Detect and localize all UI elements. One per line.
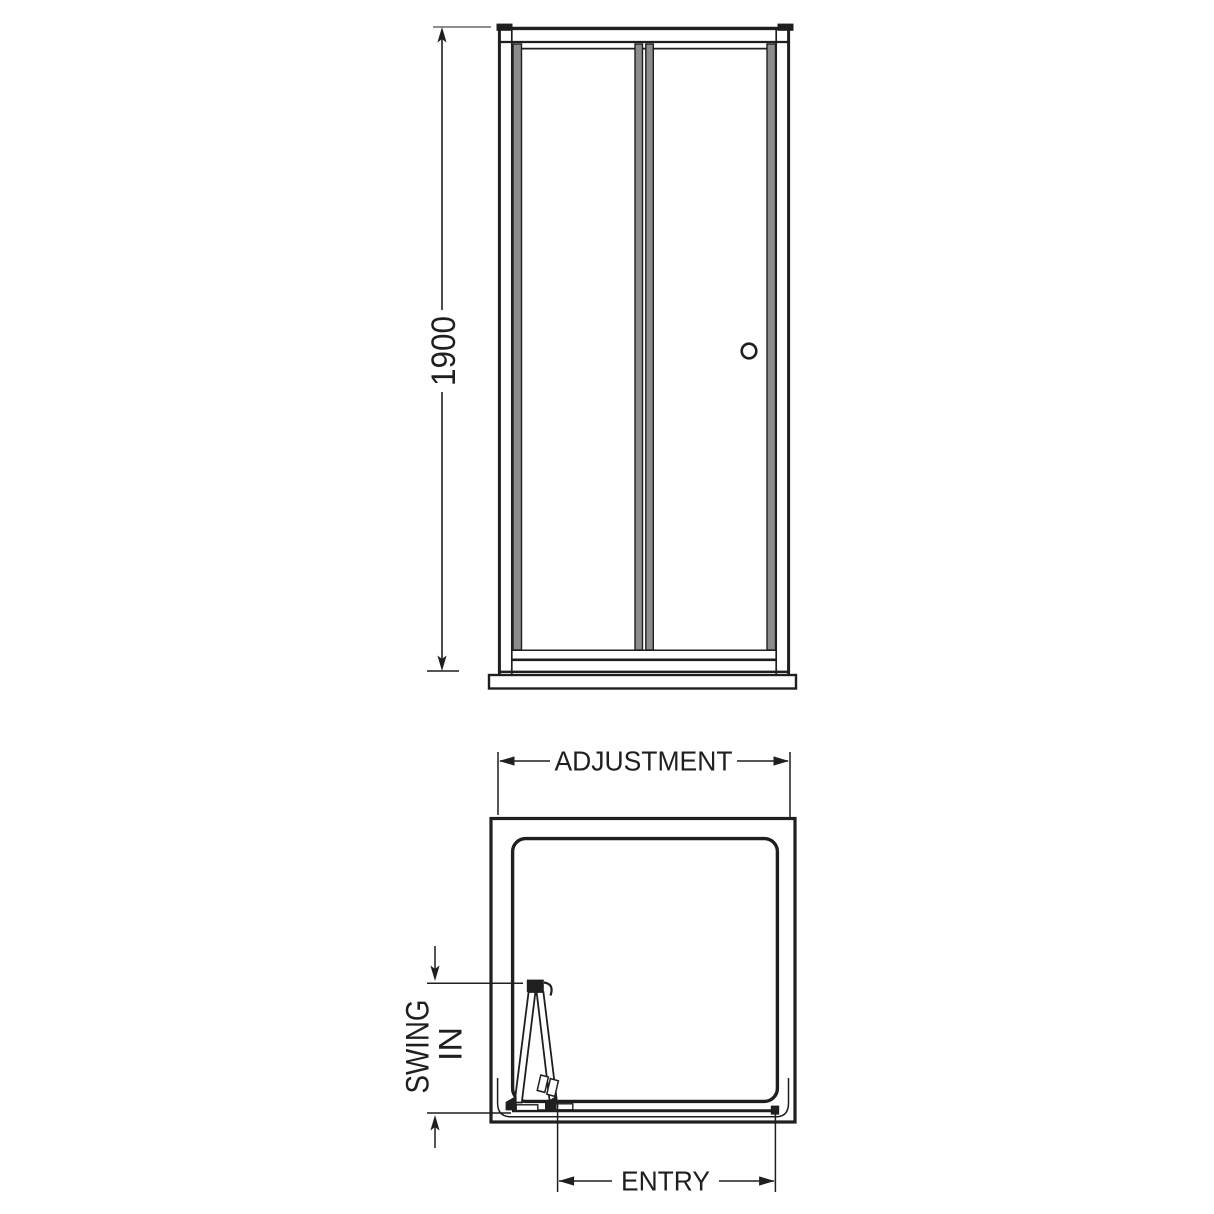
tray-front-outline	[489, 675, 796, 689]
fold-pivot-block	[527, 980, 544, 993]
left-panel-right-stile	[635, 44, 643, 650]
adjustment-dimension-label: ADJUSTMENT	[555, 746, 733, 777]
frame-jamb-inner-lines	[512, 30, 776, 675]
left-door-panel	[513, 44, 643, 650]
swing-label-line2: IN	[433, 1027, 469, 1061]
height-dimension: 1900	[425, 27, 491, 671]
shower-tray-front	[489, 675, 796, 689]
technical-drawing-canvas: 1900	[0, 0, 1214, 1214]
front-elevation-view: 1900	[425, 24, 796, 689]
door-handle-knob	[742, 344, 757, 359]
right-door-panel	[646, 44, 776, 650]
swing-label-line1: SWING	[400, 1000, 436, 1094]
right-panel-left-stile	[646, 44, 654, 650]
door-stop-block	[771, 1106, 779, 1115]
left-panel-left-stile	[513, 44, 522, 650]
right-panel-right-stile	[767, 44, 776, 650]
door-foot-left-glide	[516, 1105, 538, 1111]
frame-top-right-cap	[778, 24, 794, 31]
entry-dimension-label: ENTRY	[621, 1166, 710, 1197]
plan-view: ADJUSTMENT	[400, 746, 796, 1197]
height-dimension-label: 1900	[425, 316, 463, 386]
